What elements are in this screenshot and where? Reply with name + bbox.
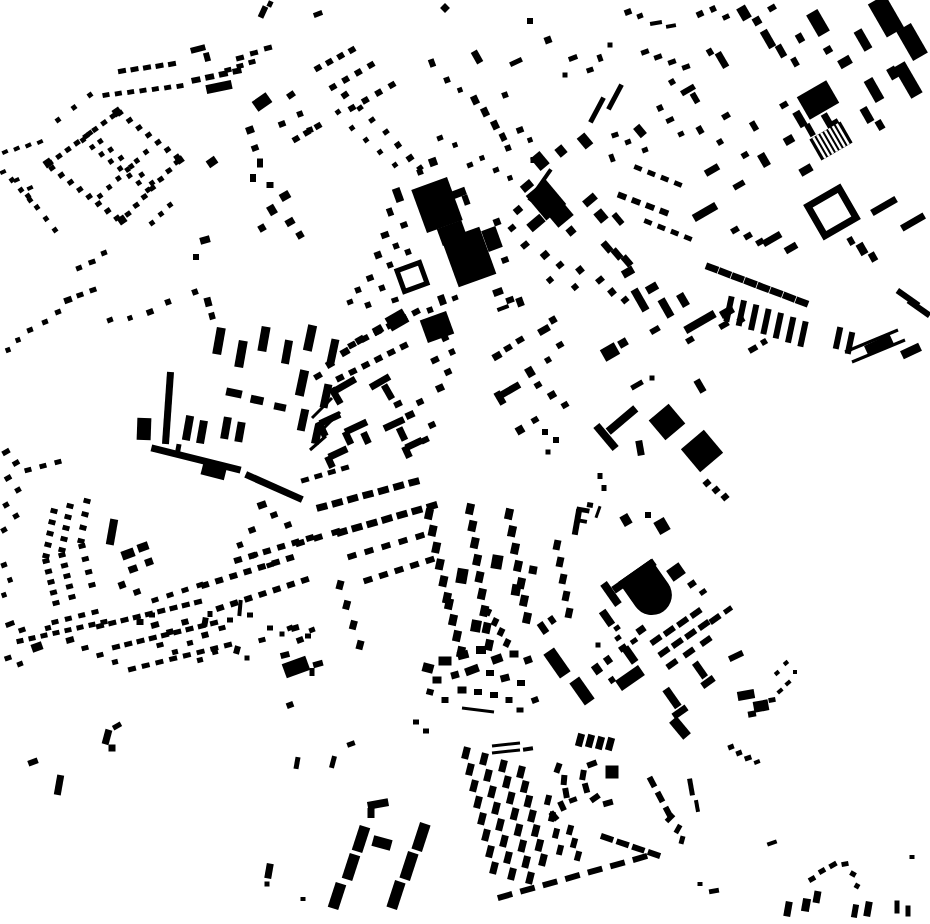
row-building [556,844,564,855]
row-building [313,533,323,541]
building-footprint [579,770,587,781]
building-footprint [411,822,430,852]
row-building [415,532,425,540]
building-footprint [523,655,533,664]
building-footprint [2,501,10,508]
building-footprint [490,653,503,664]
building-footprint [218,625,226,632]
building-footprint [356,104,364,112]
row-building [748,304,759,331]
building-footprint [452,142,458,148]
row-building [88,622,96,628]
row-building [663,625,676,637]
building-footprint [864,77,885,103]
row-building [40,632,48,638]
row-building [44,568,52,575]
building-footprint [575,733,585,747]
building-footprint [440,3,450,13]
row-building [552,828,560,839]
row-building [155,659,164,666]
building-footprint [248,526,257,534]
row-building [705,262,720,273]
row-building [63,573,71,580]
row-building [756,282,771,293]
row-building [182,652,191,659]
row-building [224,67,232,74]
building-footprint [783,134,796,146]
building-footprint [146,308,155,316]
row-building [477,812,487,825]
building-footprint [164,298,172,306]
row-building [1,149,8,155]
building-footprint [546,450,551,455]
building-footprint [503,343,513,352]
row-building [659,208,670,217]
building-footprint [516,126,525,134]
row-building [398,537,408,545]
building-footprint [14,486,22,493]
row-building [643,218,652,226]
row-building [361,361,371,370]
building-footprint [205,80,232,94]
row-building [435,558,445,570]
row-building [76,624,84,630]
row-building [506,791,516,804]
row-building [169,605,178,612]
row-building [151,86,159,92]
building-footprint [723,605,733,614]
building-footprint [606,405,639,434]
building-footprint [520,179,534,193]
building-footprint [491,351,502,362]
building-footprint [282,656,311,679]
row-building [148,635,157,642]
row-building [224,642,233,649]
row-building [633,164,642,172]
building-footprint [589,793,601,804]
row-building [519,594,529,606]
row-building [616,838,630,848]
building-footprint [547,615,557,625]
row-building [28,635,36,641]
row-building [773,312,784,339]
row-building [364,547,374,555]
building-footprint [693,378,706,394]
building-footprint [775,44,788,59]
row-building [57,171,65,179]
building-footprint [89,286,97,293]
row-building [236,63,244,70]
building-footprint [727,744,734,751]
row-building [347,341,357,350]
building-footprint [396,426,408,442]
building-footprint [681,430,723,472]
row-building [165,167,173,175]
building-footprint [399,851,418,881]
row-building [272,585,281,593]
building-footprint [199,235,210,244]
row-building [736,300,747,327]
building-footprint [600,342,620,361]
row-building [64,627,72,633]
building-footprint [650,20,663,26]
building-footprint [784,242,799,255]
building-footprint [547,390,557,400]
row-building [381,514,394,524]
building-footprint [808,875,817,883]
building-footprint [524,366,536,379]
building-footprint [760,338,768,346]
building-footprint [653,53,662,60]
building-footprint [641,147,648,154]
building-footprint [798,163,813,176]
building-footprint [517,708,524,713]
row-building [249,50,258,57]
building-footprint [490,554,503,570]
building-footprint [595,275,605,285]
row-building [176,83,184,89]
building-footprint [598,473,603,479]
row-building [97,193,104,200]
row-building [55,117,62,124]
row-building [377,486,389,496]
building-footprint [208,312,216,320]
building-footprint [910,855,915,859]
row-building [336,52,345,61]
building-footprint [667,58,676,65]
row-building [699,635,712,647]
row-building [85,193,93,201]
row-building [631,197,642,206]
building-footprint [392,187,404,203]
building-footprint [428,421,437,429]
row-building [52,630,60,636]
wall-line [462,708,494,712]
building-footprint [614,634,622,642]
building-footprint [649,325,661,335]
building-footprint [711,485,720,494]
building-footprint [568,54,578,62]
building-footprint [493,218,502,227]
building-footprint [208,611,213,617]
building-footprint [96,652,104,659]
row-building [565,607,574,618]
building-footprint [768,697,776,703]
row-building [534,839,544,852]
building-footprint [596,643,601,648]
building-footprint [111,659,118,665]
row-building [42,558,50,565]
building-footprint [497,304,510,312]
building-footprint [593,208,608,224]
building-footprint [448,348,456,356]
row-building [112,644,121,651]
building-footprint [762,231,783,247]
row-building [149,180,156,187]
building-footprint [439,657,452,666]
building-footprint [779,100,789,109]
row-building [166,592,174,599]
row-building [62,525,70,532]
building-footprint [30,641,43,652]
building-footprint [662,687,681,710]
building-footprint [666,23,677,29]
building-footprint [674,824,683,834]
building-footprint [470,619,482,633]
row-building [519,885,535,895]
row-building [24,467,32,474]
courtyard-ring-building [397,263,427,292]
building-footprint [615,665,645,691]
row-building [477,588,487,600]
row-building [559,573,568,584]
building-footprint [577,132,594,149]
row-building [154,139,162,147]
row-building [516,765,526,778]
building-footprint [846,236,855,246]
row-building [104,207,112,215]
building-footprint [599,609,615,628]
building-footprint [906,906,911,917]
building-footprint [605,737,615,751]
building-footprint [699,588,708,596]
row-building [465,763,475,776]
building-footprint [354,286,362,294]
building-footprint [458,687,467,694]
building-footprint [728,650,744,662]
building-footprint [329,756,337,769]
row-building [797,321,808,348]
building-footprint [665,116,674,124]
building-footprint [368,116,376,124]
building-footprint [540,250,551,261]
building-footprint [54,309,61,316]
row-building [645,202,656,211]
row-building [157,176,165,184]
row-building [54,459,62,466]
row-building [328,83,337,92]
building-footprint [196,420,208,444]
building-footprint [400,221,409,229]
building-footprint [900,212,926,231]
building-footprint [748,710,757,717]
row-building [335,374,345,383]
building-footprint [676,292,690,308]
building-footprint [722,13,730,20]
building-footprint [0,562,7,569]
building-footprint [721,111,731,120]
row-building [657,646,670,658]
row-building [673,180,682,188]
building-footprint [833,327,843,350]
building-footprint [744,754,752,761]
building-footprint [65,636,74,644]
building-footprint [683,310,716,334]
building-footprint [507,175,513,181]
building-footprint [181,618,189,626]
row-building [431,541,441,553]
building-footprint [533,381,542,390]
building-footprint [420,311,455,343]
row-building [88,582,96,589]
building-footprint [279,190,292,202]
row-building [114,90,122,96]
row-building [49,589,57,596]
building-footprint [900,343,922,360]
row-building [120,617,129,624]
building-footprint [191,288,199,296]
row-building [647,849,661,859]
row-building [210,620,219,627]
building-footprint [679,835,686,844]
row-building [487,785,497,798]
building-footprint [841,861,849,867]
building-footprint [363,137,370,144]
row-building [135,179,142,186]
building-footprint [630,380,644,391]
building-footprint [136,541,149,552]
row-building [348,367,358,376]
building-footprint [106,519,118,546]
row-building [258,590,267,598]
row-building [782,292,797,303]
building-footprint [490,119,500,130]
building-footprint [588,96,606,123]
building-footprint [426,306,434,314]
building-footprint [586,759,597,768]
row-building [527,809,537,822]
building-footprint [704,163,720,177]
row-building [305,534,314,542]
building-footprint [851,904,859,918]
building-footprint [349,125,356,132]
building-footprint [41,319,48,326]
row-building [657,224,666,232]
row-building [378,571,388,579]
building-footprint [137,418,152,440]
building-footprint [346,740,355,747]
building-footprint [374,251,383,260]
building-footprint [795,32,806,43]
row-building [428,525,438,537]
row-building [244,595,253,603]
building-footprint [613,624,621,632]
row-building [531,824,541,837]
building-footprint [620,295,629,304]
building-footprint [360,431,371,445]
row-building [138,171,145,178]
row-building [117,165,124,172]
building-footprint [426,688,434,696]
row-building [520,780,530,793]
building-footprint [0,526,8,533]
building-footprint [310,668,315,676]
building-footprint [650,376,655,381]
building-footprint [203,297,212,308]
row-building [542,878,558,888]
row-building [107,146,114,153]
row-building [169,655,178,662]
building-footprint [109,745,116,752]
building-footprint [297,408,309,431]
building-footprint [286,701,295,709]
row-building [517,839,527,852]
row-building [118,155,125,162]
building-footprint [544,36,553,45]
row-building [81,511,89,518]
building-footprint [591,663,603,676]
row-building [632,853,648,863]
row-building [248,59,256,66]
row-building [366,518,379,528]
building-footprint [392,162,399,169]
row-building [124,641,133,648]
row-building [609,859,625,869]
building-footprint [555,341,564,350]
building-footprint [133,588,142,596]
row-building [399,342,409,351]
row-building [507,867,517,880]
row-building [689,607,702,619]
building-footprint [295,369,309,396]
row-building [194,599,203,606]
row-building [617,192,628,201]
row-building [87,92,94,99]
row-building [47,579,55,586]
building-footprint [4,654,12,661]
row-building [51,619,59,626]
building-footprint [602,485,607,491]
row-building [34,204,41,211]
row-building [346,494,358,504]
building-footprint [760,29,776,49]
row-building [155,63,164,69]
row-building [96,623,105,630]
building-footprint [381,383,395,400]
building-footprint [492,167,499,174]
building-footprint [313,10,323,18]
row-building [516,577,526,589]
building-footprint [455,568,468,585]
row-building [461,746,471,759]
row-building [438,575,448,587]
row-building [158,211,165,218]
building-footprint [342,853,360,881]
row-building [562,590,571,601]
building-footprint [523,746,533,751]
building-footprint [457,87,463,93]
row-building [313,122,322,131]
building-footprint [75,265,82,272]
building-footprint [506,697,513,703]
building-footprint [193,254,199,260]
row-building [50,508,58,515]
building-footprint [575,265,585,275]
row-building [263,45,272,52]
building-footprint [753,759,760,765]
building-footprint [631,288,650,313]
building-footprint [562,788,570,799]
row-building [128,666,137,673]
building-footprint [633,124,647,138]
row-building [83,498,91,505]
building-footprint [186,640,193,646]
building-footprint [247,613,253,618]
building-footprint [561,775,568,785]
building-footprint [606,83,624,110]
row-building [392,481,404,491]
row-building [126,172,133,179]
